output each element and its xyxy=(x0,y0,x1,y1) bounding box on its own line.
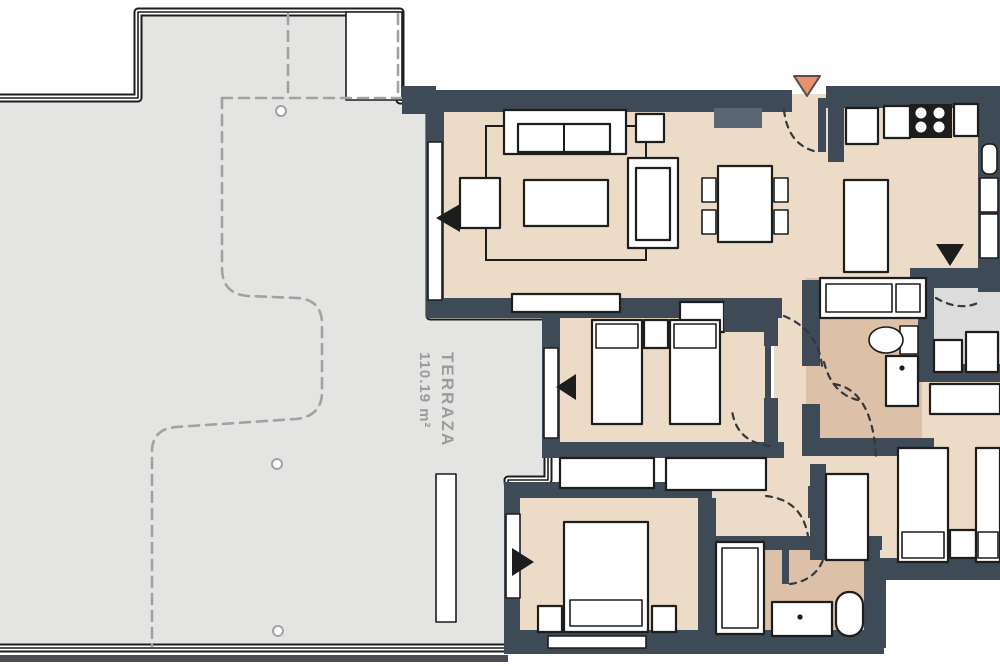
wardrobe-below-2 xyxy=(666,458,766,490)
bed-single-1 xyxy=(592,320,642,424)
window-bottom-wall xyxy=(548,636,646,648)
sideboard xyxy=(512,294,620,312)
planter-bottom-left xyxy=(436,474,456,622)
bed-right-2 xyxy=(976,448,1000,562)
bathtub xyxy=(820,278,926,318)
bedroom-middle-door-leaf xyxy=(765,346,771,398)
armchair xyxy=(628,158,678,248)
nightstand-left xyxy=(538,606,562,632)
dryer xyxy=(966,332,998,372)
kitchen-counter-right-1 xyxy=(980,178,998,212)
side-table xyxy=(636,114,664,142)
wall-corridor-lower xyxy=(764,398,778,450)
planter-top xyxy=(346,12,402,100)
terrace-label-area: 110.19 m² xyxy=(416,352,433,429)
wardrobe-dark xyxy=(724,302,766,332)
entry-cupboard xyxy=(714,108,762,128)
wall-corridor-upper xyxy=(764,314,778,346)
dining-table xyxy=(718,166,772,242)
terrace-drain-3 xyxy=(273,626,283,636)
dining-chair-1 xyxy=(702,178,716,202)
terrace-drain-1 xyxy=(276,106,286,116)
terrace-label-name: TERRAZA xyxy=(438,352,457,447)
dining-chair-2 xyxy=(702,210,716,234)
window-bedroom-middle xyxy=(544,348,558,438)
kitchen-sink xyxy=(982,144,997,174)
bed-single-2 xyxy=(670,320,720,424)
hall-closet xyxy=(826,474,868,560)
floor-plan: TERRAZA 110.19 m² xyxy=(0,0,1000,666)
entrance-door-leaf xyxy=(818,98,826,152)
kitchen-counter-corner xyxy=(954,104,978,136)
wall-bedroom-right-vertical xyxy=(870,558,886,648)
nightstand-right-bedroom xyxy=(950,530,976,558)
wall-bedroom-bottom-right xyxy=(698,498,716,646)
terrace-base-line xyxy=(0,655,508,662)
nightstand-middle xyxy=(644,320,668,348)
shower xyxy=(716,542,764,634)
kitchen-counter-right-2 xyxy=(980,214,998,258)
nightstand-right xyxy=(652,606,676,632)
tv-unit xyxy=(460,178,500,228)
sofa xyxy=(504,110,626,154)
vanity-1 xyxy=(886,356,918,406)
kitchen-counter-top xyxy=(884,106,910,138)
washer xyxy=(934,340,962,372)
wall-bath1-left-upper xyxy=(802,280,820,366)
bed-right-1 xyxy=(898,448,948,562)
dining-chair-4 xyxy=(774,210,788,234)
wall-bedroom-middle-bottom xyxy=(554,442,784,458)
toilet-1 xyxy=(869,326,918,354)
fridge xyxy=(846,108,878,144)
dining-chair-3 xyxy=(774,178,788,202)
bathroom-2-door-leaf xyxy=(782,542,789,584)
floor-plan-drawing: TERRAZA 110.19 m² xyxy=(0,0,1000,666)
window-living xyxy=(428,142,442,300)
bedroom-bottom-door-leaf xyxy=(808,486,816,518)
cooktop xyxy=(910,104,952,138)
wardrobe-below-1 xyxy=(560,458,654,488)
kitchen-island xyxy=(844,180,888,272)
vanity-2 xyxy=(772,602,832,636)
terrace-drain-2 xyxy=(272,459,282,469)
coffee-table xyxy=(524,180,608,226)
toilet-2 xyxy=(836,592,863,636)
entrance-arrow-icon xyxy=(794,76,820,96)
closet-band xyxy=(930,384,1000,414)
wall-entrance-right xyxy=(828,86,844,162)
bed-double xyxy=(564,522,648,632)
